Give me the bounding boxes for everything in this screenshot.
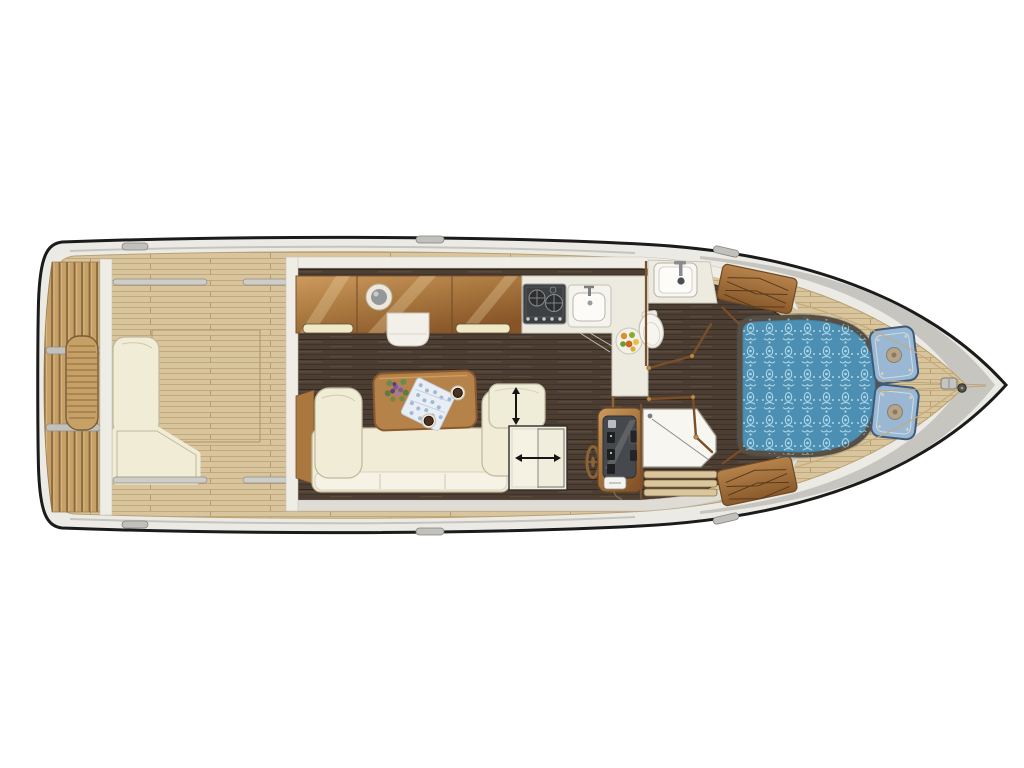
stove-icon	[523, 284, 566, 324]
transom-seat	[66, 336, 98, 430]
shower-grate	[644, 471, 717, 496]
yacht-floorplan-page	[0, 0, 1024, 768]
cabinet-pullout	[387, 313, 429, 346]
bed-damask-pattern	[740, 317, 878, 455]
sofa-side-trim	[296, 390, 314, 484]
sliding-backrest	[489, 384, 545, 428]
galley-kick-light	[456, 324, 510, 333]
double-bed	[740, 317, 878, 455]
yacht-floorplan-drawing	[0, 0, 1024, 768]
fruit-bowl-icon	[616, 328, 642, 354]
coffee-table	[373, 370, 477, 434]
swim-platform	[44, 259, 112, 515]
cleat-icon	[122, 243, 148, 250]
sliding-door	[509, 426, 567, 490]
porthole-icon	[366, 284, 392, 310]
cleat-icon	[122, 521, 148, 528]
salon-seating	[296, 370, 567, 492]
galley-sink-icon	[568, 285, 611, 327]
transom-wall	[100, 259, 112, 515]
pillow	[869, 326, 919, 385]
washbasin-icon	[654, 261, 697, 297]
cup-icon	[421, 414, 435, 428]
pillow	[870, 384, 919, 440]
galley-kick-light	[303, 324, 353, 333]
cup-icon	[451, 386, 465, 400]
shower-drain-icon	[648, 414, 653, 419]
sofa-left-armrest	[315, 388, 362, 478]
cleat-icon	[416, 528, 444, 535]
cleat-icon	[416, 236, 444, 243]
